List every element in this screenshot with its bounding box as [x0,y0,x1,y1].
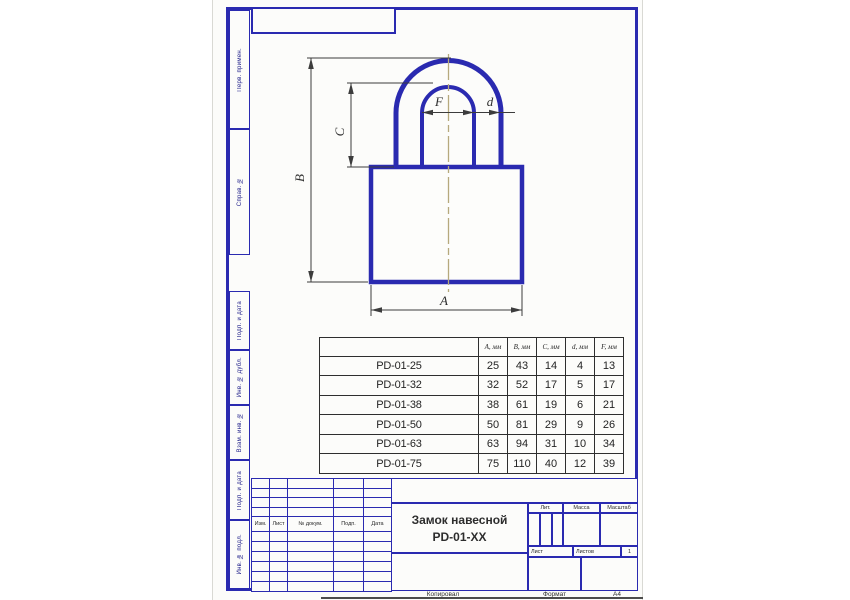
dim-label-d: d [487,94,494,109]
org-cell-left [528,557,581,591]
sheets-label: Листов [576,549,594,555]
rev-header-cell: Дата [364,517,392,532]
value-cell: 19 [537,395,566,415]
size-table-header-row: А, мм В, мм С, мм d, мм F, мм [320,338,624,357]
value-cell: 14 [537,356,566,376]
table-row: PD-01-25 25 43 14 4 13 [320,356,624,376]
arrowhead [308,58,314,69]
table-row: PD-01-50 50 81 29 9 26 [320,415,624,435]
value-cell: 40 [537,454,566,474]
scale-label: Масштаб [607,505,631,511]
dim-label-F: F [434,94,444,109]
designation-field [391,478,638,503]
drawing-code: PD-01-XX [432,530,486,544]
material-field [391,553,528,591]
value-cell: 17 [537,376,566,396]
value-cell: 17 [595,376,624,396]
value-cell: 32 [479,376,508,396]
scale-value-cell [600,513,638,546]
value-cell: 13 [595,356,624,376]
lit-label: Лит. [540,505,550,511]
table-row: PD-01-38 38 61 19 6 21 [320,395,624,415]
value-cell: 12 [566,454,595,474]
drawing-sheet: Перв. примен. Справ. № Подп. и дата Инв.… [212,0,643,600]
value-cell: 63 [479,434,508,454]
size-table-corner-cell [320,338,479,357]
scale-label-cell: Масштаб [600,503,638,513]
arrowhead [371,307,382,313]
lit-sub-cell [540,513,552,546]
value-cell: 9 [566,415,595,435]
value-cell: 25 [479,356,508,376]
sheets-value: 1 [628,549,631,555]
padlock-body [371,167,522,282]
rev-header-cell: Лист [270,517,288,532]
sheets-value-cell: 1 [621,546,638,557]
sheet-label: Лист [531,549,543,555]
mass-label-cell: Масса [563,503,600,513]
dim-label-B: B [292,174,307,182]
value-cell: 75 [479,454,508,474]
table-row: PD-01-75 75 110 40 12 39 [320,454,624,474]
revision-table: Изм. Лист № докум. Подп. Дата [251,478,392,592]
value-cell: 52 [508,376,537,396]
size-table-header-cell: F, мм [595,338,624,357]
arrowhead [489,110,500,116]
size-table: А, мм В, мм С, мм d, мм F, мм PD-01-25 2… [319,337,623,474]
mass-label: Масса [573,505,589,511]
value-cell: 39 [595,454,624,474]
dim-label-A: A [439,293,448,308]
model-cell: PD-01-32 [320,376,479,396]
lit-sub-cell [528,513,540,546]
value-cell: 61 [508,395,537,415]
lit-label-cell: Лит. [528,503,563,513]
value-cell: 94 [508,434,537,454]
value-cell: 110 [508,454,537,474]
value-cell: 26 [595,415,624,435]
value-cell: 34 [595,434,624,454]
size-table-header-cell: С, мм [537,338,566,357]
model-cell: PD-01-25 [320,356,479,376]
table-row: PD-01-32 32 52 17 5 17 [320,376,624,396]
value-cell: 4 [566,356,595,376]
value-cell: 43 [508,356,537,376]
model-cell: PD-01-50 [320,415,479,435]
value-cell: 81 [508,415,537,435]
org-cell-right [581,557,638,591]
drawing-canvas: Перв. примен. Справ. № Подп. и дата Инв.… [0,0,850,600]
arrowhead [348,156,354,167]
rev-header-cell: № докум. [288,517,334,532]
rev-header-cell: Подп. [334,517,364,532]
revision-header-row: Изм. Лист № докум. Подп. Дата [252,517,392,532]
arrowhead [348,83,354,94]
sheet-bottom-edge [321,597,643,599]
size-table-header-cell: d, мм [566,338,595,357]
value-cell: 21 [595,395,624,415]
lit-sub-cell [552,513,563,546]
model-cell: PD-01-75 [320,454,479,474]
value-cell: 38 [479,395,508,415]
value-cell: 10 [566,434,595,454]
value-cell: 31 [537,434,566,454]
value-cell: 29 [537,415,566,435]
value-cell: 6 [566,395,595,415]
arrowhead [511,307,522,313]
sheets-cell: Листов [573,546,621,557]
table-row: PD-01-63 63 94 31 10 34 [320,434,624,454]
size-table-header-cell: В, мм [508,338,537,357]
mass-value-cell [563,513,600,546]
arrowhead [308,271,314,282]
value-cell: 5 [566,376,595,396]
drawing-title: Замок навесной [412,513,508,527]
title-field: Замок навесной PD-01-XX [391,503,528,553]
value-cell: 50 [479,415,508,435]
rev-header-cell: Изм. [252,517,270,532]
sheet-cell: Лист [528,546,573,557]
model-cell: PD-01-63 [320,434,479,454]
model-cell: PD-01-38 [320,395,479,415]
size-table-header-cell: А, мм [479,338,508,357]
dim-label-C: C [332,127,347,136]
